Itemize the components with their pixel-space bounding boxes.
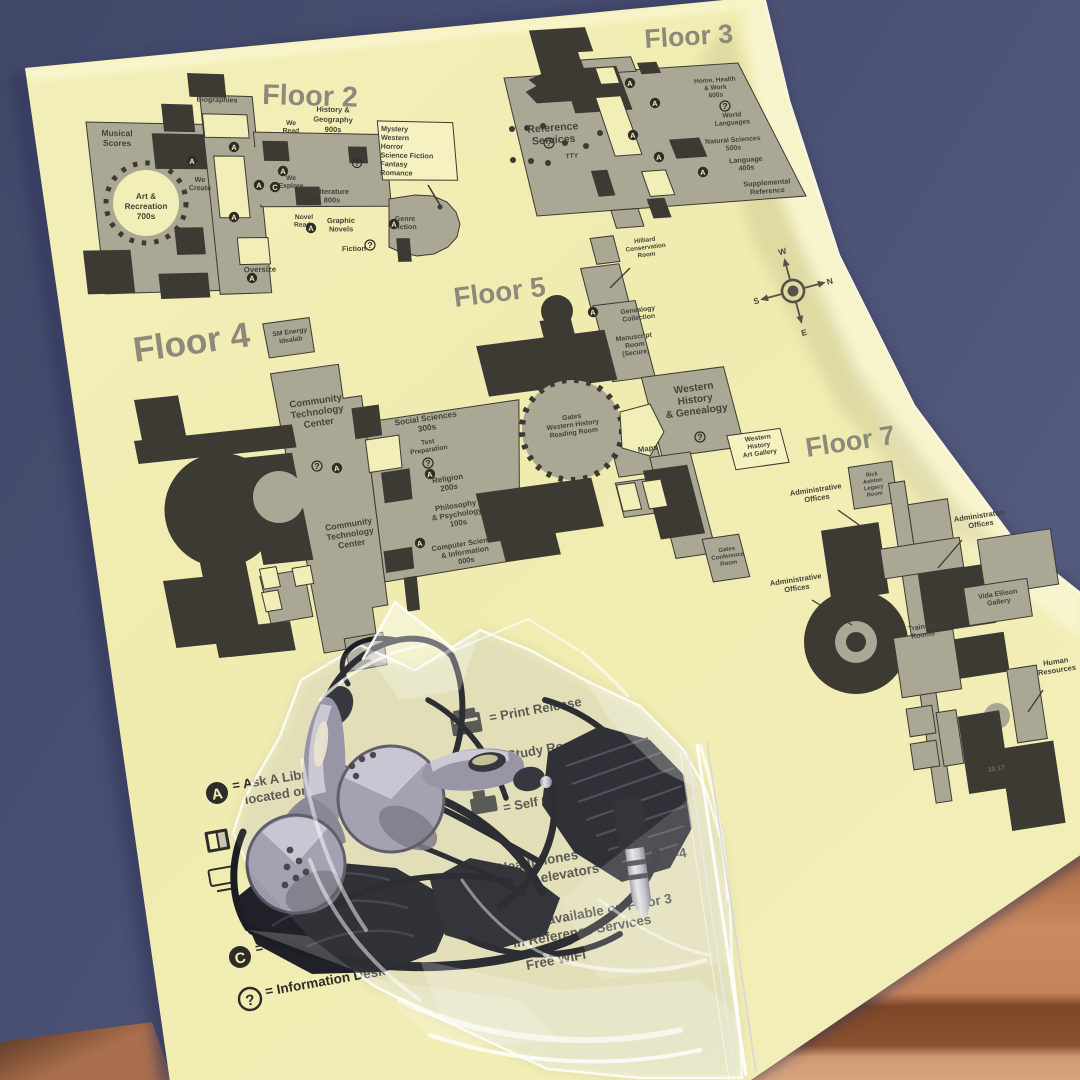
svg-text:A: A [231,213,237,222]
svg-text:Floor 3: Floor 3 [643,18,733,54]
svg-text:?: ? [367,240,372,250]
svg-text:A: A [391,220,397,229]
svg-text:GraphicNovels: GraphicNovels [327,216,355,234]
svg-text:A: A [280,167,286,176]
svg-text:A: A [231,143,237,152]
svg-text:Fiction: Fiction [342,244,366,253]
svg-text:Geography: Geography [313,115,354,125]
svg-text:?: ? [425,458,430,468]
svg-text:SupplementalReference: SupplementalReference [743,176,791,197]
svg-text:TTY: TTY [565,153,579,161]
svg-text:Scores: Scores [103,138,132,148]
svg-text:A: A [249,274,255,283]
svg-text:700s: 700s [137,211,156,221]
svg-text:?: ? [697,432,702,442]
svg-text:ReferenceServices: ReferenceServices [527,120,580,148]
svg-text:A: A [308,224,314,233]
svg-text:Musical: Musical [101,128,132,139]
svg-text:Biographies: Biographies [196,95,237,104]
svg-text:Recreation: Recreation [125,201,168,211]
svg-text:Art &: Art & [136,191,156,201]
svg-text:Oversize: Oversize [244,265,277,275]
svg-text:?: ? [314,461,319,471]
svg-text:A: A [256,181,262,190]
svg-text:?: ? [722,101,727,111]
svg-text:?: ? [355,159,360,168]
svg-text:?: ? [546,138,551,148]
svg-text:900s: 900s [325,125,342,134]
svg-text:A: A [189,157,195,166]
svg-text:History &: History & [316,105,350,115]
svg-text:C: C [272,183,278,192]
